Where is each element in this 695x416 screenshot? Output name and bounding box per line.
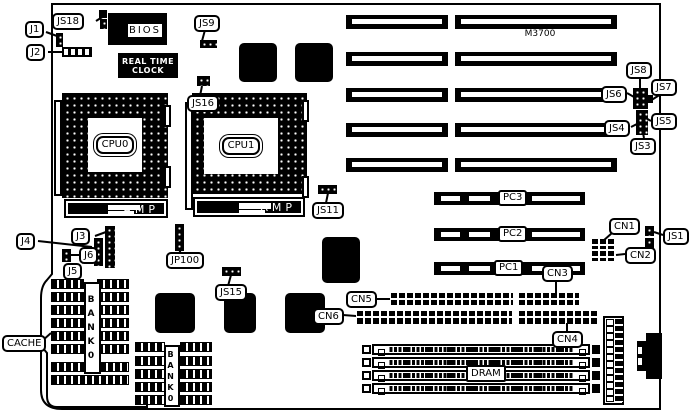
j3-jumper-block	[105, 226, 115, 268]
callout-js1: JS1	[663, 228, 689, 245]
callout-js4: JS4	[604, 120, 630, 137]
callout-js7: JS7	[651, 79, 677, 96]
rtc-line2: CLOCK	[132, 66, 164, 75]
callout-j2: J2	[26, 44, 45, 61]
j1-jumper	[56, 33, 63, 47]
callout-cn1: CN1	[609, 218, 640, 235]
ic-chip	[155, 293, 195, 333]
isa-slot	[346, 15, 448, 29]
bank0-strip-left: BANK0	[84, 282, 101, 374]
js3-js4-js5-jumper-block	[636, 110, 648, 135]
isa-slot	[346, 88, 448, 102]
callout-cn2: CN2	[625, 247, 656, 264]
callout-js18: JS18	[52, 13, 84, 30]
cn1-header	[590, 239, 616, 249]
bios-chip: BIOS	[108, 13, 167, 45]
cpu0-socket-lever	[54, 100, 62, 196]
cpu0-socket: CPU0	[62, 93, 168, 198]
callout-j1: J1	[25, 21, 44, 38]
cpu1-socket-tab	[302, 100, 309, 122]
isa-slot	[455, 123, 617, 137]
dram-label: DRAM	[466, 365, 506, 382]
bank0-strip-right: BANK0	[164, 345, 180, 407]
pci-slot-label: PC3	[498, 190, 527, 206]
callout-j6: J6	[79, 247, 98, 264]
callout-cn4: CN4	[552, 331, 583, 348]
callout-j4: J4	[16, 233, 35, 250]
cn5-connector	[389, 293, 513, 305]
bios-chip-label: BIOS	[128, 24, 162, 37]
jp100-jumper	[175, 224, 184, 251]
js1-jumper	[645, 226, 654, 236]
js18-jumper	[99, 10, 107, 18]
amp-text: AMP	[123, 203, 159, 216]
cn4-connector	[517, 311, 598, 324]
callout-cache: CACHE	[2, 335, 46, 352]
j6-jumper	[62, 249, 71, 262]
board-model-text: M3700	[505, 29, 575, 39]
pci-slot-label: PC2	[498, 226, 527, 242]
isa-slot	[346, 52, 448, 66]
callout-js16: JS16	[187, 95, 219, 112]
motherboard-diagram: BIOS REAL TIME CLOCK M3700 PC3 PC2 PC1	[0, 0, 695, 416]
amp-text: AMP	[260, 201, 296, 214]
cpu0-label: CPU0	[96, 136, 135, 154]
js15-jumper	[222, 267, 241, 276]
callout-js3: JS3	[630, 138, 656, 155]
js16-jumper	[197, 76, 210, 86]
cpu1-socket-tab	[302, 176, 309, 198]
rtc-chip: REAL TIME CLOCK	[118, 53, 178, 78]
j2-jumper	[62, 47, 92, 57]
callout-js9: JS9	[194, 15, 220, 32]
cpu1-amp-regulator: AMP	[193, 197, 305, 217]
callout-j5: J5	[63, 263, 82, 280]
callout-j3: J3	[71, 228, 90, 245]
callout-js6: JS6	[601, 86, 627, 103]
callout-jp100: JP100	[166, 252, 204, 269]
cn2-header	[590, 251, 616, 261]
cpu0-socket-tab	[164, 105, 171, 127]
js11-jumper	[318, 185, 337, 194]
callout-js5: JS5	[651, 113, 677, 130]
ic-chip	[322, 237, 360, 283]
js6-js7-js8-jumper-block	[633, 88, 648, 109]
pci-slot-pc2: PC2	[434, 228, 585, 241]
callout-cn6: CN6	[313, 308, 344, 325]
callout-js15: JS15	[215, 284, 247, 301]
isa-slot	[455, 88, 617, 102]
rtc-line1: REAL TIME	[122, 57, 174, 66]
pci-slot-pc3: PC3	[434, 192, 585, 205]
callout-js8: JS8	[626, 62, 652, 79]
cpu1-label: CPU1	[222, 137, 261, 155]
ic-chip	[295, 43, 333, 82]
isa-slot	[346, 123, 448, 137]
ic-chip	[239, 43, 277, 82]
isa-slot	[455, 15, 617, 29]
js9-jumper	[200, 40, 217, 48]
cpu0-socket-tab	[164, 166, 171, 188]
callout-js11: JS11	[312, 202, 344, 219]
isa-slot	[346, 158, 448, 172]
pci-slot-label: PC1	[494, 260, 523, 276]
cn6-connector	[355, 311, 512, 324]
js7-jumper-tab	[648, 95, 653, 103]
isa-slot	[455, 52, 617, 66]
cn3-connector	[517, 293, 579, 305]
power-connector	[603, 316, 624, 405]
callout-cn3: CN3	[542, 265, 573, 282]
cpu0-amp-regulator: AMP	[64, 199, 168, 218]
callout-cn5: CN5	[346, 291, 377, 308]
js18-jumper-2	[100, 19, 107, 29]
isa-slot	[455, 158, 617, 172]
